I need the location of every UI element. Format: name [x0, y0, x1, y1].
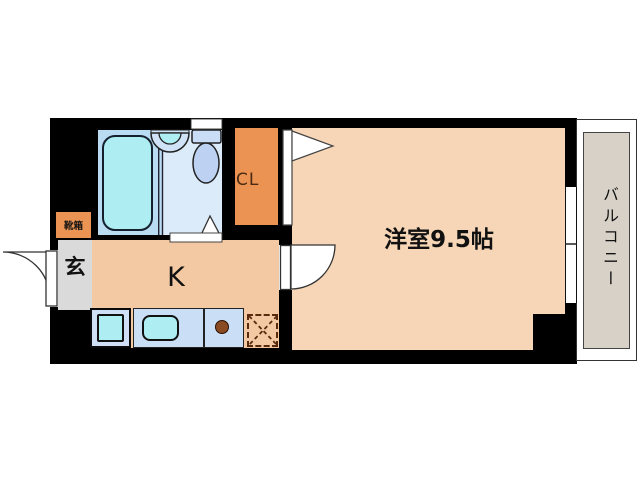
corner-pillar	[533, 314, 565, 350]
shoe-cabinet: 靴箱	[56, 212, 91, 238]
stove-burner	[215, 320, 229, 334]
bathroom-floor	[98, 130, 163, 235]
shoe-cabinet-label: 靴箱	[64, 218, 83, 232]
sliding-window	[565, 187, 577, 303]
toilet-floor	[163, 130, 222, 235]
entrance-label: 玄	[58, 251, 92, 281]
closet-label: CL	[236, 170, 259, 190]
washer-pan-inner	[97, 314, 124, 342]
kitchen-label: K	[116, 262, 236, 293]
main-room-label: 洋室9.5帖	[329, 220, 549, 254]
floorplan: 靴箱	[0, 0, 640, 480]
refrigerator-space	[247, 314, 278, 347]
counter-divider	[203, 308, 205, 348]
balcony-label: バルコニー	[597, 186, 621, 326]
kitchen-sink	[142, 315, 179, 341]
entrance-door-swing	[3, 252, 50, 299]
